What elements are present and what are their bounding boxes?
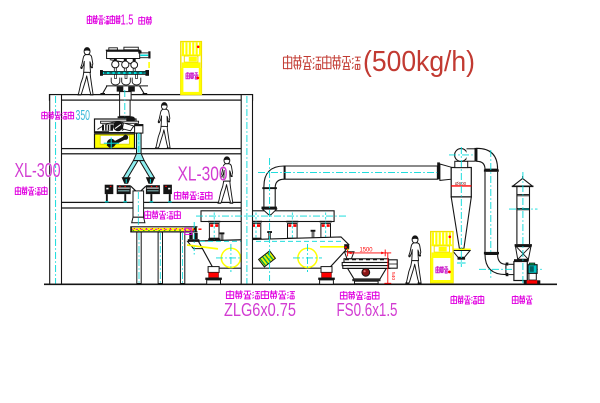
svg-text:350: 350 [76, 108, 91, 124]
svg-text:XL-300: XL-300 [15, 159, 61, 182]
svg-text:XL-300: XL-300 [178, 162, 228, 185]
svg-text:1500: 1500 [360, 247, 374, 254]
svg-text:ZLG6x0.75: ZLG6x0.75 [224, 299, 296, 320]
svg-text:1.5: 1.5 [121, 13, 134, 29]
svg-text:(500kg/h): (500kg/h) [363, 46, 475, 78]
svg-text:FS0.6x1.5: FS0.6x1.5 [337, 299, 398, 320]
svg-text:540: 540 [390, 272, 396, 280]
svg-text:Ø600: Ø600 [455, 181, 467, 186]
